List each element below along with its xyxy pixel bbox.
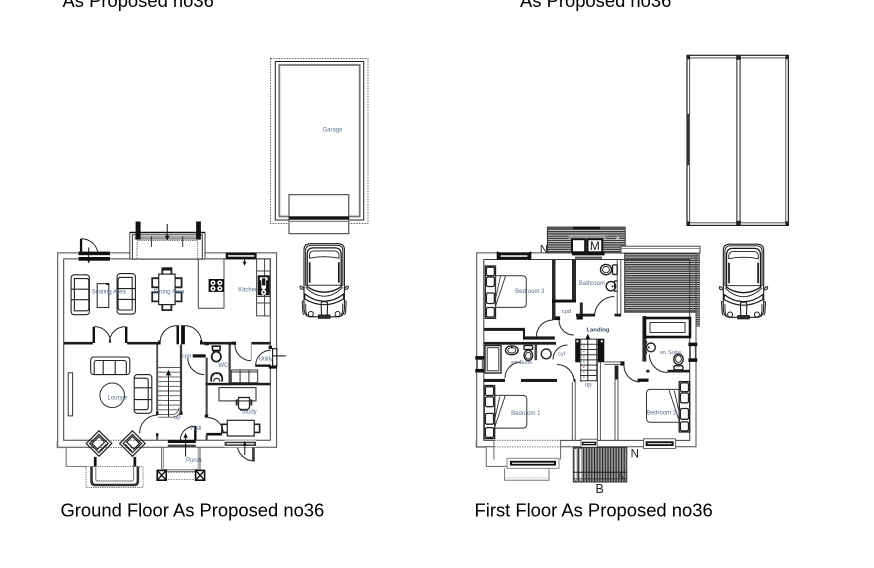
svg-text:WC: WC bbox=[218, 363, 229, 369]
svg-text:Study: Study bbox=[241, 410, 256, 416]
svg-text:Lounge: Lounge bbox=[107, 396, 128, 402]
svg-text:Kitchen: Kitchen bbox=[238, 287, 258, 293]
svg-text:Bedroom 2: Bedroom 2 bbox=[647, 410, 677, 416]
svg-text:As Proposed no36: As Proposed no36 bbox=[520, 0, 671, 11]
svg-text:N: N bbox=[631, 449, 639, 461]
svg-text:Utility: Utility bbox=[259, 356, 273, 362]
svg-text:As Proposed no36: As Proposed no36 bbox=[63, 0, 214, 11]
svg-text:M: M bbox=[590, 239, 600, 253]
svg-text:Ground Floor As Proposed no36: Ground Floor As Proposed no36 bbox=[61, 500, 325, 521]
svg-text:B: B bbox=[596, 482, 604, 496]
svg-text:cyl: cyl bbox=[558, 351, 565, 357]
svg-text:N: N bbox=[540, 244, 548, 256]
svg-text:Garage: Garage bbox=[322, 128, 343, 134]
svg-text:Hall: Hall bbox=[191, 426, 201, 432]
svg-text:Bathroom: Bathroom bbox=[579, 281, 605, 287]
svg-text:Bedroom 3: Bedroom 3 bbox=[515, 289, 545, 295]
svg-text:cpd: cpd bbox=[182, 353, 191, 359]
svg-text:Landing: Landing bbox=[587, 327, 610, 333]
svg-text:up: up bbox=[174, 415, 181, 421]
svg-text:up: up bbox=[585, 383, 592, 389]
svg-text:Dining Area: Dining Area bbox=[153, 290, 185, 296]
svg-text:Bedroom 1: Bedroom 1 bbox=[511, 411, 541, 417]
svg-text:cpd: cpd bbox=[562, 309, 571, 315]
svg-text:First Floor As Proposed no36: First Floor As Proposed no36 bbox=[475, 500, 713, 521]
svg-text:A: A bbox=[618, 472, 624, 481]
svg-text:en Suite: en Suite bbox=[660, 350, 681, 356]
svg-text:Porch: Porch bbox=[186, 458, 202, 464]
svg-text:en Suite: en Suite bbox=[511, 360, 532, 366]
svg-text:Seating Area: Seating Area bbox=[91, 290, 126, 296]
